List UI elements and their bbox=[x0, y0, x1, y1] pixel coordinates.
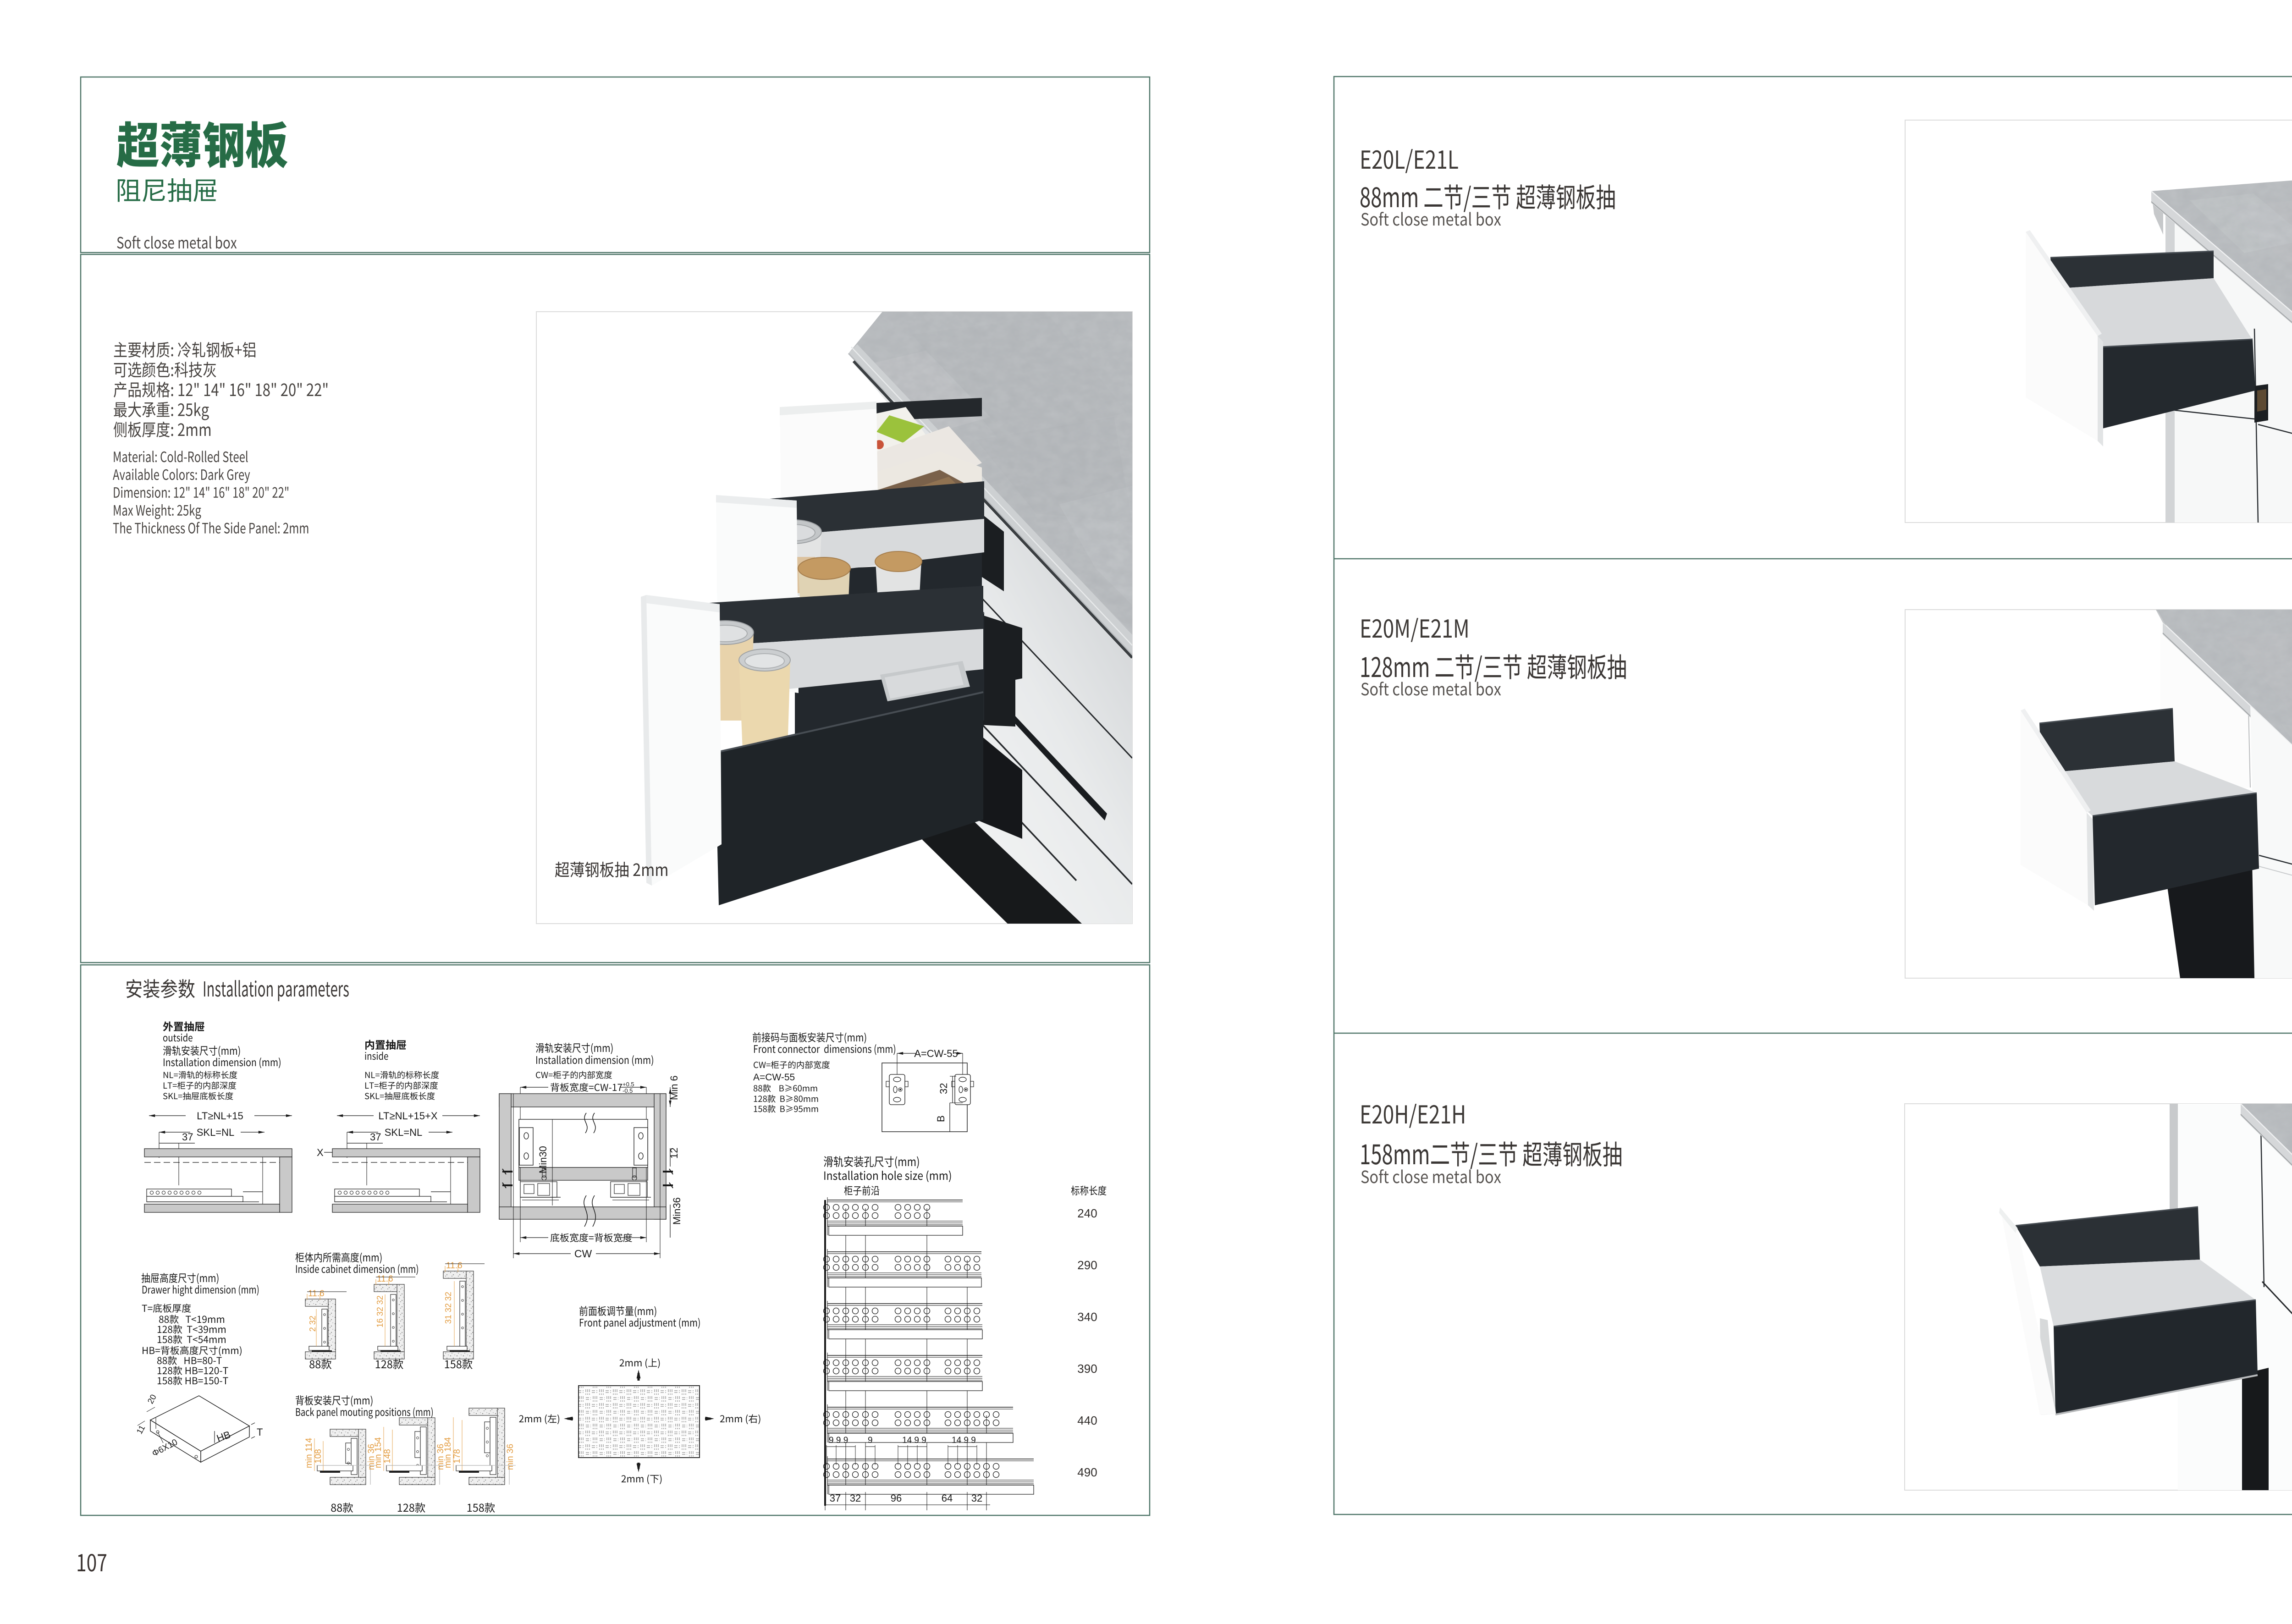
svg-text:11: 11 bbox=[135, 1424, 147, 1436]
svg-text:+0.5: +0.5 bbox=[623, 1081, 634, 1088]
svg-text:LT≥NL+15: LT≥NL+15 bbox=[197, 1110, 243, 1122]
svg-text:490: 490 bbox=[1077, 1465, 1097, 1479]
svg-text:37: 37 bbox=[830, 1492, 841, 1504]
svg-text:32: 32 bbox=[971, 1492, 982, 1504]
svg-text:108: 108 bbox=[314, 1449, 323, 1464]
svg-text:min 114: min 114 bbox=[304, 1437, 314, 1468]
svg-text:CW: CW bbox=[574, 1248, 592, 1260]
svg-text:37: 37 bbox=[182, 1131, 193, 1143]
svg-text:-0.5: -0.5 bbox=[623, 1087, 633, 1094]
svg-text:Φ6X10: Φ6X10 bbox=[150, 1437, 179, 1459]
svg-text:B: B bbox=[935, 1115, 947, 1122]
svg-text:340: 340 bbox=[1077, 1310, 1097, 1324]
svg-text:32: 32 bbox=[850, 1492, 861, 1504]
svg-text:Min 6: Min 6 bbox=[668, 1075, 680, 1100]
svg-text:min 184: min 184 bbox=[443, 1437, 453, 1468]
svg-text:32: 32 bbox=[938, 1083, 949, 1094]
svg-text:20: 20 bbox=[146, 1393, 158, 1405]
svg-text:A=CW-55: A=CW-55 bbox=[914, 1048, 958, 1059]
svg-text:LT≥NL+15+X: LT≥NL+15+X bbox=[378, 1110, 437, 1122]
svg-text:T: T bbox=[257, 1426, 263, 1438]
svg-text:64: 64 bbox=[942, 1492, 953, 1504]
svg-text:148: 148 bbox=[383, 1449, 392, 1464]
svg-text:11.6: 11.6 bbox=[377, 1274, 393, 1284]
svg-text:12: 12 bbox=[668, 1148, 680, 1159]
svg-text:9: 9 bbox=[868, 1436, 873, 1445]
svg-text:31 32 32: 31 32 32 bbox=[444, 1292, 453, 1324]
svg-text:96: 96 bbox=[891, 1492, 902, 1504]
svg-text:min 36: min 36 bbox=[506, 1444, 515, 1470]
svg-text:Min30: Min30 bbox=[537, 1146, 549, 1173]
svg-text:37: 37 bbox=[370, 1131, 381, 1143]
svg-text:X: X bbox=[317, 1147, 324, 1158]
svg-text:Min36: Min36 bbox=[671, 1197, 683, 1225]
svg-text:11.6: 11.6 bbox=[446, 1261, 463, 1271]
svg-text:390: 390 bbox=[1077, 1362, 1097, 1376]
svg-text:14 9 9: 14 9 9 bbox=[952, 1436, 976, 1445]
svg-text:9 9 9: 9 9 9 bbox=[829, 1436, 848, 1445]
svg-text:11.6: 11.6 bbox=[308, 1289, 325, 1299]
svg-text:SKL=NL: SKL=NL bbox=[385, 1127, 423, 1138]
svg-text:16 32 32: 16 32 32 bbox=[375, 1295, 385, 1327]
svg-text:440: 440 bbox=[1077, 1414, 1097, 1427]
svg-text:A=CW-55: A=CW-55 bbox=[753, 1072, 795, 1083]
svg-text:2 32: 2 32 bbox=[308, 1316, 317, 1332]
svg-text:290: 290 bbox=[1077, 1258, 1097, 1272]
svg-text:14 9 9: 14 9 9 bbox=[902, 1436, 926, 1445]
svg-text:SKL=NL: SKL=NL bbox=[197, 1127, 235, 1138]
svg-text:178: 178 bbox=[452, 1449, 462, 1464]
svg-text:240: 240 bbox=[1077, 1206, 1097, 1220]
svg-text:min 154: min 154 bbox=[374, 1437, 383, 1468]
